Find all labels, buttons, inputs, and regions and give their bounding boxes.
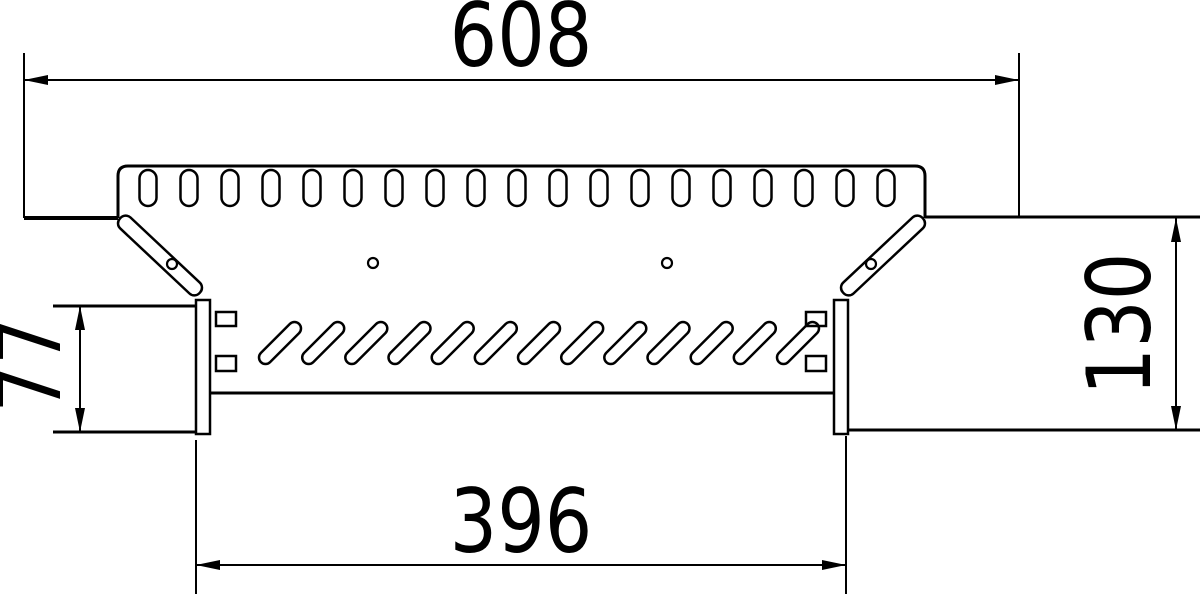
dimension-right-height: 130: [1069, 218, 1181, 430]
arrowhead-right-icon: [995, 75, 1019, 85]
arrowhead-right-icon: [822, 560, 846, 570]
tee-part-outline: [24, 166, 1200, 434]
top-oval-slot: [427, 170, 444, 206]
diagonal-slot: [688, 319, 735, 366]
top-oval-slot: [140, 170, 157, 206]
diagonal-slot-row: [256, 319, 821, 366]
body-round-hole: [368, 258, 378, 268]
arrowhead-left-icon: [196, 560, 220, 570]
dimension-label-top: 608: [450, 0, 593, 88]
diagonal-slot: [559, 319, 606, 366]
dimension-bottom-width: 396: [196, 436, 846, 594]
top-oval-slot: [673, 170, 690, 206]
body-round-hole: [662, 258, 672, 268]
top-oval-slot: [796, 170, 813, 206]
top-oval-slot: [222, 170, 239, 206]
add-on-tee-drawing: 608: [0, 0, 1200, 594]
top-oval-slot: [632, 170, 649, 206]
top-oval-slot: [755, 170, 772, 206]
diagonal-slot: [731, 319, 778, 366]
square-hole: [216, 356, 236, 371]
top-oval-slot: [468, 170, 485, 206]
technical-drawing-page: 608: [0, 0, 1200, 594]
diagonal-slot: [645, 319, 692, 366]
top-oval-slot: [509, 170, 526, 206]
top-oval-slot: [591, 170, 608, 206]
top-oval-slot: [878, 170, 895, 206]
diagonal-slot: [300, 319, 347, 366]
corner-strip-right: [838, 213, 928, 299]
diagonal-slot: [386, 319, 433, 366]
top-oval-slot: [304, 170, 321, 206]
dimension-label-bottom: 396: [450, 471, 593, 573]
arrowhead-down-icon: [1171, 406, 1181, 430]
diagonal-slot: [515, 319, 562, 366]
arrowhead-left-icon: [24, 75, 48, 85]
diagonal-slot: [429, 319, 476, 366]
top-oval-slot: [263, 170, 280, 206]
arrowhead-up-icon: [1171, 218, 1181, 242]
dimension-top-width: 608: [24, 0, 1019, 218]
top-oval-slot: [181, 170, 198, 206]
top-oval-slot: [837, 170, 854, 206]
square-hole: [806, 356, 826, 371]
top-oval-slot: [345, 170, 362, 206]
top-slot-row: [140, 170, 895, 206]
flange-right: [834, 300, 848, 434]
dimension-label-right: 130: [1069, 253, 1171, 396]
corner-strip-left: [115, 213, 205, 299]
top-oval-slot: [714, 170, 731, 206]
top-oval-slot: [386, 170, 403, 206]
dimension-left-height: 77: [0, 306, 85, 432]
diagonal-slot: [472, 319, 519, 366]
diagonal-slot: [256, 319, 303, 366]
diagonal-slot: [343, 319, 390, 366]
square-hole: [216, 312, 236, 326]
diagonal-slot: [602, 319, 649, 366]
dimension-label-left: 77: [0, 317, 82, 412]
top-oval-slot: [550, 170, 567, 206]
flange-left: [196, 300, 210, 434]
